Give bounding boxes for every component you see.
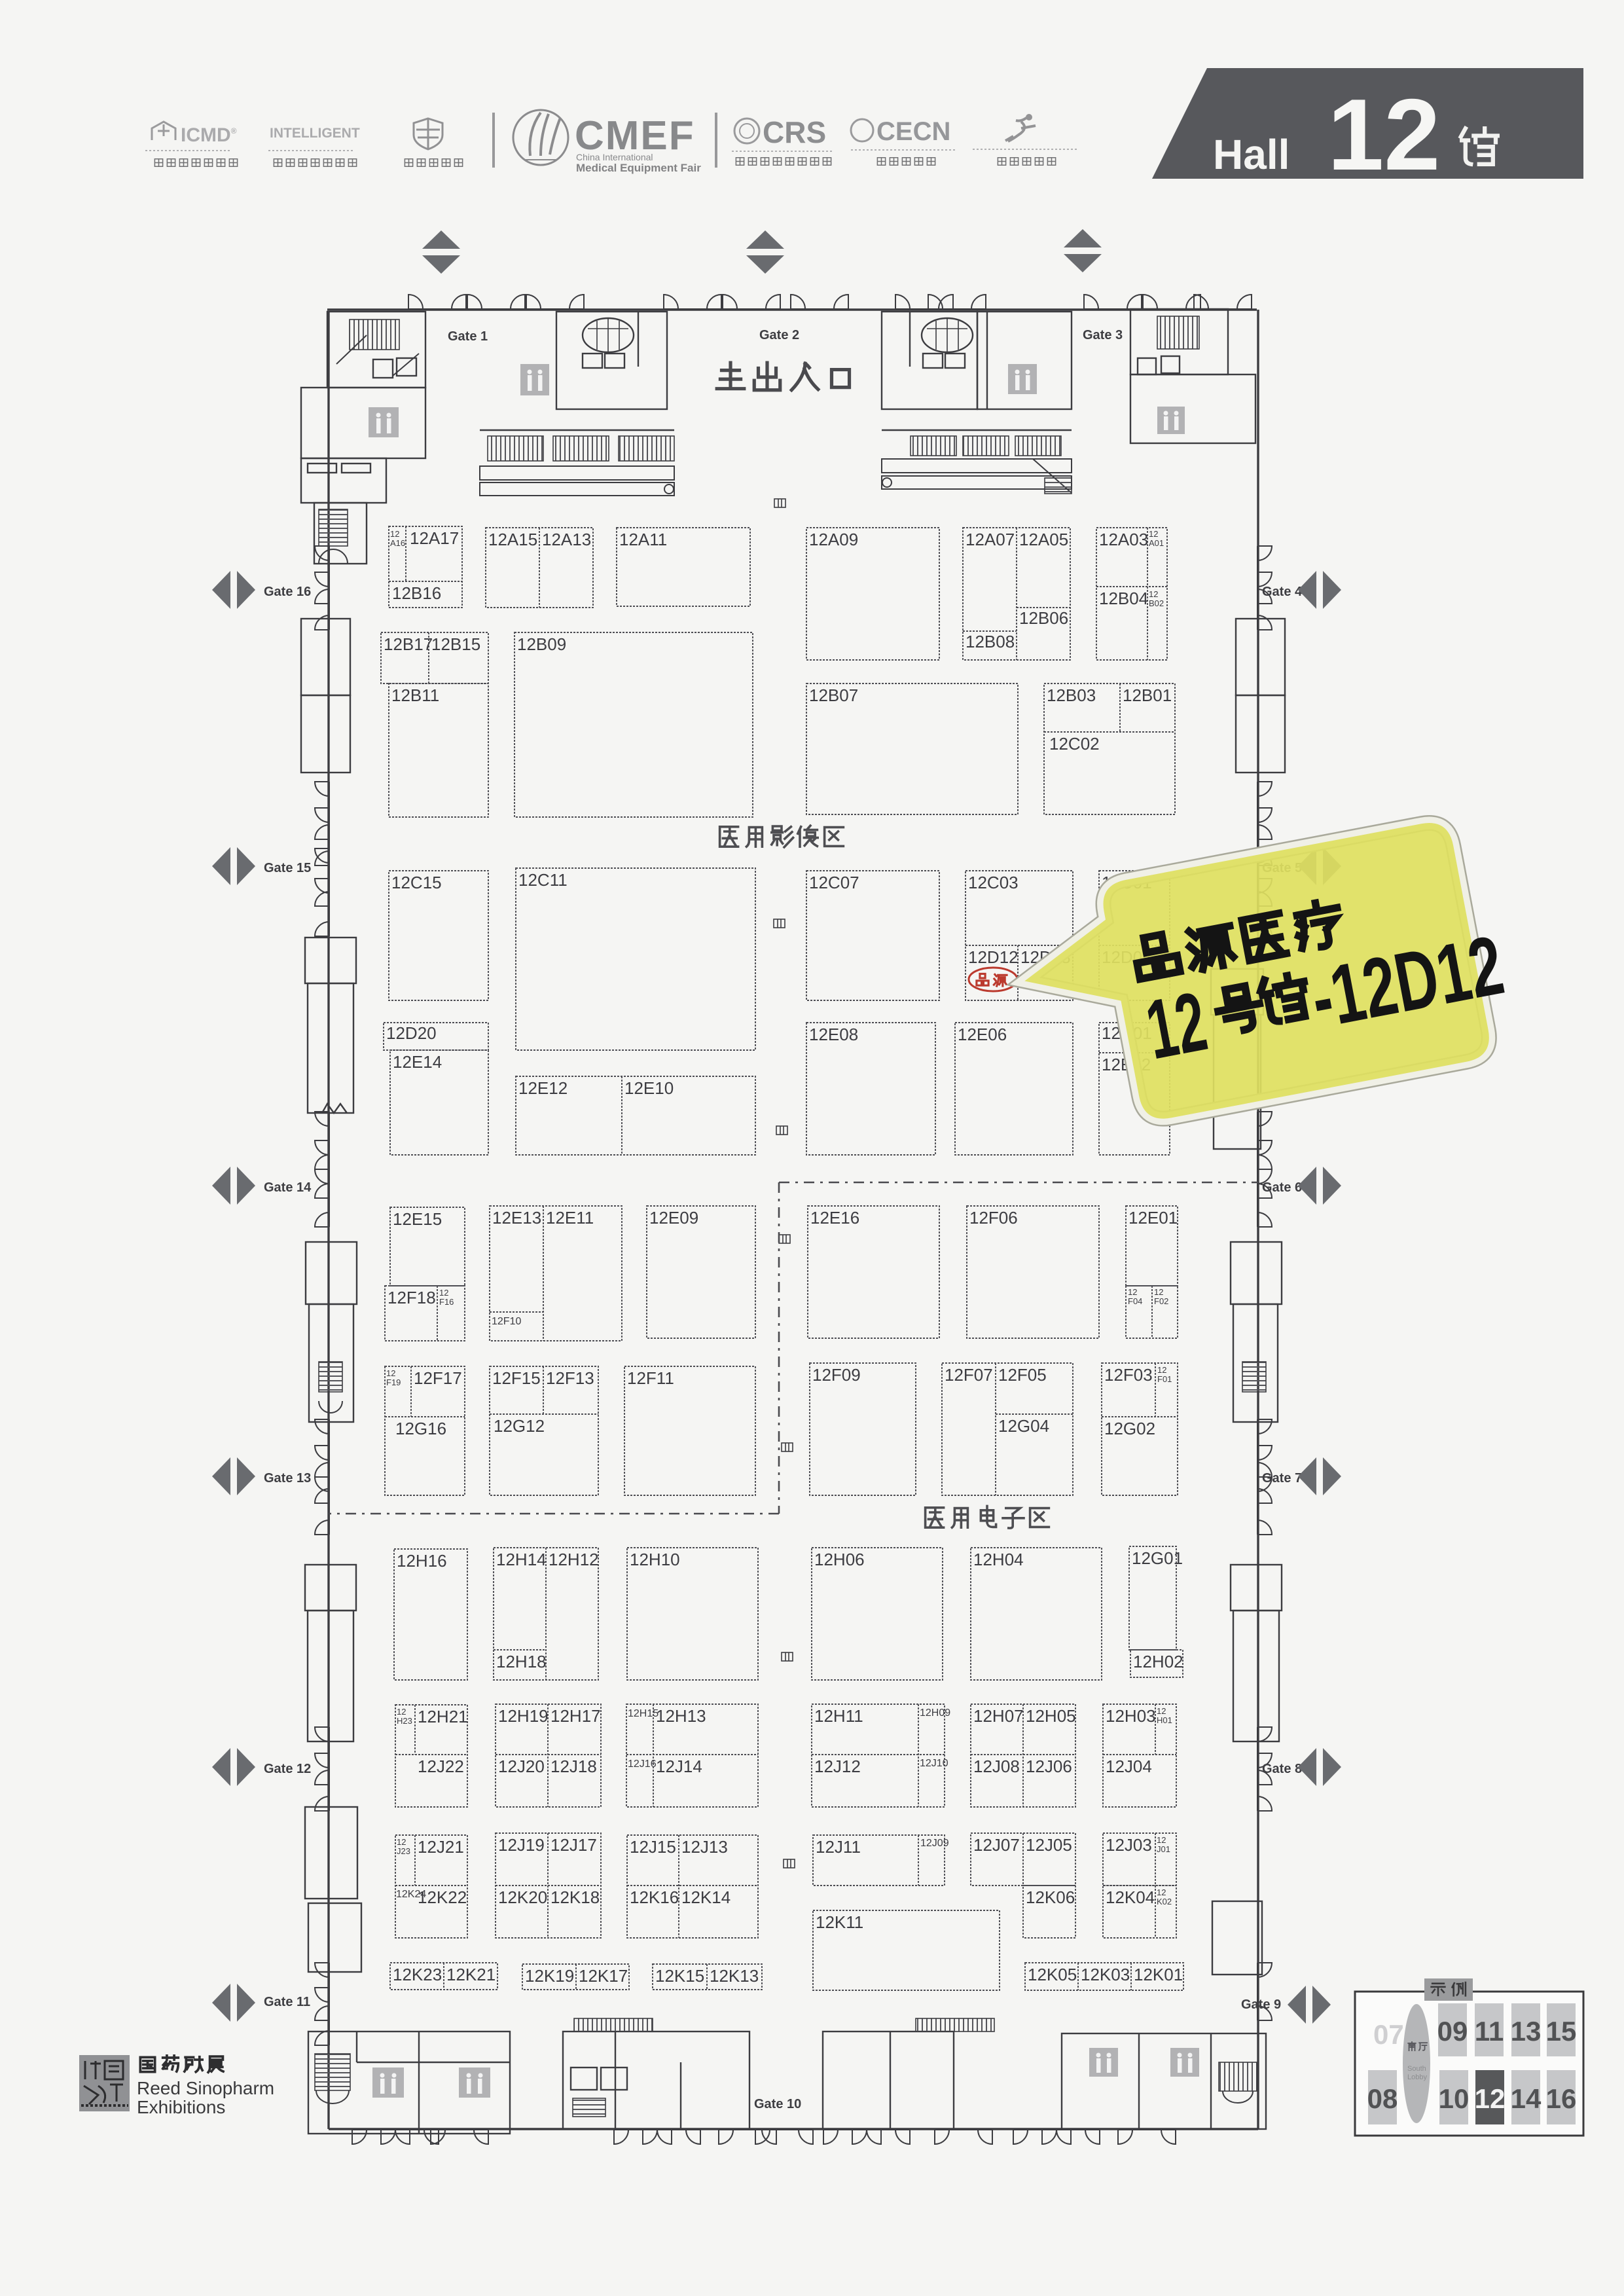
svg-text:Gate 12: Gate 12 (264, 1762, 311, 1776)
svg-text:Gate 9: Gate 9 (1241, 1997, 1281, 2012)
svg-text:12A15: 12A15 (488, 530, 537, 549)
svg-text:China International: China International (576, 152, 653, 162)
svg-text:12J06: 12J06 (1026, 1757, 1072, 1776)
svg-text:12E08: 12E08 (809, 1025, 858, 1044)
svg-text:12B16: 12B16 (392, 583, 441, 603)
svg-text:12J08: 12J08 (973, 1757, 1020, 1776)
svg-text:12B06: 12B06 (1019, 608, 1068, 628)
svg-text:Gate 6: Gate 6 (1262, 1180, 1302, 1195)
svg-text:12K11: 12K11 (816, 1912, 863, 1932)
svg-text:12: 12 (1157, 1887, 1166, 1897)
svg-text:12K16: 12K16 (630, 1887, 679, 1907)
svg-text:12H15: 12H15 (628, 1708, 659, 1719)
svg-text:12E11: 12E11 (546, 1208, 594, 1228)
svg-text:12B15: 12B15 (431, 634, 480, 654)
svg-text:12K22: 12K22 (418, 1887, 467, 1907)
svg-text:F02: F02 (1154, 1296, 1168, 1306)
svg-text:12B08: 12B08 (965, 632, 1015, 651)
svg-text:Gate 16: Gate 16 (264, 585, 311, 599)
svg-text:12: 12 (439, 1288, 448, 1298)
svg-text:H01: H01 (1157, 1715, 1172, 1725)
svg-text:12J13: 12J13 (681, 1837, 728, 1857)
svg-text:12H11: 12H11 (814, 1706, 863, 1726)
svg-text:12K20: 12K20 (498, 1887, 547, 1907)
svg-text:12: 12 (1128, 1287, 1137, 1297)
svg-text:Gate 15: Gate 15 (264, 861, 311, 875)
svg-text:12J05: 12J05 (1026, 1835, 1072, 1855)
svg-text:12G02: 12G02 (1104, 1419, 1155, 1438)
svg-text:13: 13 (1511, 2016, 1542, 2047)
svg-text:12F06: 12F06 (969, 1208, 1018, 1228)
svg-text:12K21: 12K21 (446, 1965, 496, 1984)
svg-text:Lobby: Lobby (1407, 2073, 1427, 2081)
svg-text:Exhibitions: Exhibitions (137, 2097, 225, 2117)
svg-text:12J17: 12J17 (550, 1835, 597, 1855)
svg-text:12: 12 (1327, 78, 1440, 191)
svg-text:Medical Equipment Fair: Medical Equipment Fair (576, 162, 701, 174)
svg-text:12B11: 12B11 (391, 685, 439, 705)
svg-text:12: 12 (1475, 2083, 1506, 2114)
svg-text:12A11: 12A11 (619, 530, 667, 549)
svg-text:Gate 1: Gate 1 (448, 329, 488, 344)
svg-text:ICMD®: ICMD® (181, 124, 237, 146)
svg-text:Gate 10: Gate 10 (754, 2097, 801, 2111)
svg-text:12A05: 12A05 (1019, 530, 1068, 549)
svg-text:12J15: 12J15 (630, 1837, 676, 1857)
svg-text:12C02: 12C02 (1049, 734, 1100, 754)
svg-text:12H02: 12H02 (1133, 1652, 1183, 1671)
svg-text:12E09: 12E09 (649, 1208, 698, 1228)
svg-text:12C15: 12C15 (391, 873, 442, 892)
svg-text:10: 10 (1439, 2083, 1470, 2114)
svg-text:12J11: 12J11 (816, 1837, 861, 1857)
svg-text:12D12: 12D12 (968, 947, 1019, 967)
svg-text:South: South (1407, 2065, 1426, 2073)
svg-text:12F09: 12F09 (812, 1365, 861, 1385)
svg-text:12E12: 12E12 (518, 1078, 568, 1098)
svg-text:F04: F04 (1128, 1296, 1142, 1306)
svg-text:12E15: 12E15 (393, 1209, 442, 1229)
svg-text:12H12: 12H12 (549, 1550, 599, 1569)
svg-text:12H17: 12H17 (550, 1706, 601, 1726)
svg-text:12F05: 12F05 (998, 1365, 1047, 1385)
svg-text:Gate 4: Gate 4 (1262, 585, 1303, 599)
svg-text:12C11: 12C11 (518, 870, 568, 890)
svg-text:12B09: 12B09 (517, 634, 566, 654)
svg-text:12J16: 12J16 (628, 1758, 657, 1770)
svg-text:12F13: 12F13 (546, 1368, 594, 1388)
svg-text:12H10: 12H10 (630, 1550, 680, 1569)
svg-text:11: 11 (1475, 2016, 1504, 2047)
svg-text:12C07: 12C07 (809, 873, 859, 892)
svg-text:CECN: CECN (876, 117, 950, 146)
svg-text:12K05: 12K05 (1028, 1965, 1077, 1984)
svg-text:Hall: Hall (1213, 131, 1290, 178)
svg-text:12B01: 12B01 (1123, 685, 1172, 705)
svg-text:INTELLIGENT: INTELLIGENT (270, 126, 360, 141)
svg-text:12E14: 12E14 (393, 1052, 442, 1072)
svg-text:12J07: 12J07 (973, 1835, 1020, 1855)
svg-text:12B07: 12B07 (809, 685, 858, 705)
svg-text:12J19: 12J19 (498, 1835, 545, 1855)
svg-text:12: 12 (1157, 1365, 1166, 1375)
svg-text:12K14: 12K14 (681, 1887, 731, 1907)
svg-text:A16: A16 (390, 538, 405, 548)
svg-text:12J18: 12J18 (550, 1757, 597, 1776)
svg-text:12K03: 12K03 (1081, 1965, 1130, 1984)
svg-text:12: 12 (390, 529, 399, 539)
svg-text:08: 08 (1367, 2083, 1398, 2114)
svg-text:12E06: 12E06 (958, 1025, 1007, 1044)
svg-text:12J22: 12J22 (418, 1757, 464, 1776)
svg-text:16: 16 (1546, 2083, 1577, 2114)
svg-text:K02: K02 (1157, 1897, 1172, 1906)
svg-text:12: 12 (386, 1368, 395, 1378)
svg-text:12C03: 12C03 (968, 873, 1019, 892)
svg-text:12H09: 12H09 (920, 1707, 950, 1719)
svg-text:12K23: 12K23 (393, 1965, 442, 1984)
svg-text:12H05: 12H05 (1026, 1706, 1076, 1726)
svg-text:12G01: 12G01 (1132, 1548, 1183, 1568)
svg-text:Gate 11: Gate 11 (264, 1995, 310, 2009)
svg-text:12F03: 12F03 (1104, 1365, 1153, 1385)
svg-text:12K18: 12K18 (550, 1887, 600, 1907)
svg-text:12H16: 12H16 (397, 1551, 447, 1571)
svg-text:12K06: 12K06 (1026, 1887, 1075, 1907)
svg-text:12A07: 12A07 (965, 530, 1015, 549)
svg-text:CRS: CRS (763, 115, 826, 149)
svg-text:F16: F16 (439, 1297, 454, 1307)
svg-text:F01: F01 (1157, 1374, 1172, 1384)
svg-text:12F17: 12F17 (414, 1368, 462, 1388)
svg-text:12B04: 12B04 (1099, 589, 1148, 608)
svg-text:Gate 3: Gate 3 (1083, 328, 1123, 342)
svg-text:12A17: 12A17 (410, 528, 459, 548)
svg-text:12J21: 12J21 (418, 1837, 464, 1857)
svg-text:12: 12 (1157, 1706, 1166, 1716)
svg-text:07: 07 (1373, 2019, 1404, 2050)
svg-text:12J12: 12J12 (814, 1757, 861, 1776)
svg-text:12J14: 12J14 (656, 1757, 702, 1776)
svg-text:12: 12 (1149, 589, 1158, 599)
svg-text:H23: H23 (397, 1716, 412, 1726)
svg-text:12F18: 12F18 (388, 1288, 436, 1307)
svg-text:12G16: 12G16 (395, 1419, 446, 1438)
svg-text:12H19: 12H19 (498, 1706, 549, 1726)
svg-text:12H07: 12H07 (973, 1706, 1024, 1726)
svg-text:Gate 2: Gate 2 (759, 328, 799, 342)
svg-text:F19: F19 (386, 1377, 401, 1387)
svg-text:A01: A01 (1149, 538, 1164, 548)
svg-text:14: 14 (1511, 2083, 1542, 2114)
svg-text:12A03: 12A03 (1099, 530, 1148, 549)
svg-text:12H18: 12H18 (496, 1652, 547, 1671)
svg-text:12: 12 (1149, 529, 1158, 539)
svg-text:Gate 8: Gate 8 (1262, 1762, 1302, 1776)
svg-text:09: 09 (1437, 2016, 1468, 2047)
svg-text:12J09: 12J09 (920, 1838, 949, 1849)
svg-text:12F15: 12F15 (492, 1368, 541, 1388)
svg-text:12J03: 12J03 (1106, 1835, 1152, 1855)
svg-text:J01: J01 (1157, 1844, 1170, 1854)
svg-text:12A09: 12A09 (809, 530, 858, 549)
svg-text:J23: J23 (397, 1846, 410, 1856)
svg-text:12H21: 12H21 (418, 1707, 468, 1726)
svg-text:12H14: 12H14 (496, 1550, 547, 1569)
svg-text:12K17: 12K17 (579, 1966, 628, 1986)
svg-text:Reed Sinopharm: Reed Sinopharm (137, 2078, 274, 2098)
svg-text:12E13: 12E13 (492, 1208, 541, 1228)
svg-text:12B03: 12B03 (1047, 685, 1096, 705)
svg-text:12E01: 12E01 (1128, 1208, 1178, 1228)
svg-text:12F11: 12F11 (627, 1368, 674, 1388)
svg-text:12H06: 12H06 (814, 1550, 865, 1569)
svg-text:12K19: 12K19 (525, 1966, 574, 1986)
svg-text:12K01: 12K01 (1134, 1965, 1183, 1984)
svg-text:12H13: 12H13 (656, 1706, 706, 1726)
svg-text:12E10: 12E10 (624, 1078, 674, 1098)
svg-text:12H04: 12H04 (973, 1550, 1024, 1569)
svg-text:12G04: 12G04 (998, 1416, 1049, 1436)
svg-text:12F07: 12F07 (945, 1365, 993, 1385)
svg-text:Gate 13: Gate 13 (264, 1471, 311, 1485)
svg-text:12B17: 12B17 (384, 634, 433, 654)
svg-text:12K13: 12K13 (710, 1966, 759, 1986)
svg-text:12D20: 12D20 (386, 1023, 437, 1043)
svg-text:12G12: 12G12 (494, 1416, 545, 1436)
svg-text:12: 12 (1154, 1287, 1163, 1297)
svg-text:12: 12 (397, 1707, 406, 1717)
svg-text:12: 12 (397, 1837, 406, 1847)
svg-text:12J20: 12J20 (498, 1757, 545, 1776)
svg-text:12J10: 12J10 (920, 1758, 948, 1769)
svg-text:12J04: 12J04 (1106, 1757, 1152, 1776)
svg-text:B02: B02 (1149, 598, 1164, 608)
svg-text:12: 12 (1157, 1835, 1166, 1845)
svg-text:Gate 14: Gate 14 (264, 1180, 312, 1195)
svg-text:12H03: 12H03 (1106, 1706, 1156, 1726)
svg-text:12E16: 12E16 (810, 1208, 859, 1228)
svg-text:12K15: 12K15 (655, 1966, 704, 1986)
svg-text:12K04: 12K04 (1106, 1887, 1155, 1907)
svg-text:12A13: 12A13 (542, 530, 591, 549)
svg-text:12F10: 12F10 (492, 1316, 521, 1327)
svg-text:Gate 7: Gate 7 (1262, 1471, 1302, 1485)
svg-text:15: 15 (1546, 2016, 1577, 2047)
